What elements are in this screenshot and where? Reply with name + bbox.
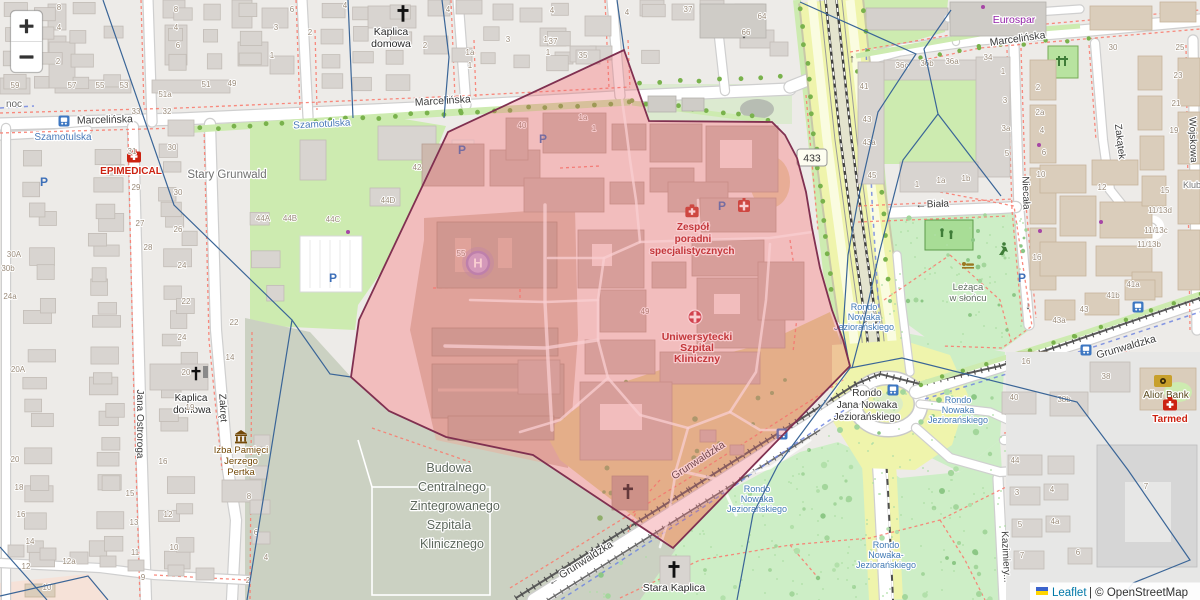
svg-text:Zakręt: Zakręt — [216, 393, 228, 422]
svg-text:28: 28 — [144, 243, 153, 252]
svg-text:1a: 1a — [466, 48, 475, 57]
svg-text:6: 6 — [1042, 148, 1047, 157]
svg-text:Leaflet: Leaflet — [1052, 587, 1087, 599]
svg-text:21: 21 — [1172, 99, 1181, 108]
svg-text:13: 13 — [130, 518, 139, 527]
svg-text:Rondo: Rondo — [873, 540, 900, 550]
svg-text:Budowa: Budowa — [426, 461, 471, 475]
svg-text:15: 15 — [1161, 186, 1170, 195]
svg-text:27: 27 — [136, 219, 145, 228]
svg-text:7: 7 — [1020, 551, 1025, 560]
svg-text:1: 1 — [270, 51, 275, 60]
svg-text:41a: 41a — [1126, 280, 1140, 289]
svg-text:Szamotulska: Szamotulska — [34, 132, 92, 143]
svg-text:30b: 30b — [1, 264, 15, 273]
svg-text:3: 3 — [274, 23, 279, 32]
svg-text:Centralnego: Centralnego — [418, 480, 486, 494]
svg-text:18: 18 — [15, 483, 24, 492]
svg-text:10: 10 — [170, 543, 179, 552]
svg-text:Niecała: Niecała — [1019, 176, 1031, 210]
svg-text:Pertka: Pertka — [227, 467, 255, 478]
svg-text:EPIMEDICAL: EPIMEDICAL — [100, 166, 162, 177]
svg-text:Szpitala: Szpitala — [427, 518, 472, 532]
svg-text:Jeziorańskiego: Jeziorańskiego — [856, 560, 916, 570]
svg-text:41b: 41b — [1106, 291, 1120, 300]
svg-text:33: 33 — [132, 107, 141, 116]
svg-text:Rondo: Rondo — [851, 302, 878, 312]
svg-text:4: 4 — [343, 1, 348, 10]
svg-text:1b: 1b — [962, 174, 971, 183]
svg-text:44C: 44C — [326, 215, 341, 224]
svg-text:44A: 44A — [256, 214, 271, 223]
svg-text:11: 11 — [131, 548, 140, 557]
svg-text:| © OpenStreetMap: | © OpenStreetMap — [1089, 587, 1188, 599]
svg-text:Wojskowa: Wojskowa — [1186, 117, 1199, 163]
svg-text:Klinicznego: Klinicznego — [420, 537, 484, 551]
svg-text:19: 19 — [1170, 126, 1179, 135]
svg-text:24: 24 — [178, 261, 187, 270]
svg-text:←: ← — [916, 199, 927, 211]
svg-text:37: 37 — [684, 5, 693, 14]
svg-text:4: 4 — [264, 553, 269, 562]
svg-text:2: 2 — [1036, 83, 1041, 92]
svg-text:↓: ↓ — [1025, 300, 1031, 312]
svg-text:16: 16 — [159, 457, 168, 466]
svg-text:12: 12 — [164, 510, 173, 519]
svg-text:55: 55 — [96, 81, 105, 90]
svg-text:59: 59 — [11, 81, 20, 90]
svg-text:4: 4 — [1040, 126, 1045, 135]
svg-text:30: 30 — [174, 188, 183, 197]
svg-text:Marcelińska: Marcelińska — [77, 113, 133, 126]
svg-text:45: 45 — [868, 171, 877, 180]
svg-text:14: 14 — [226, 353, 235, 362]
svg-text:6: 6 — [1076, 548, 1081, 557]
svg-text:4a: 4a — [1051, 517, 1060, 526]
svg-text:8: 8 — [247, 492, 252, 501]
svg-text:4: 4 — [446, 5, 451, 14]
svg-text:4: 4 — [550, 6, 555, 15]
svg-text:26: 26 — [174, 225, 183, 234]
svg-text:3a: 3a — [1002, 124, 1011, 133]
svg-text:Rondo: Rondo — [852, 388, 882, 399]
svg-text:noc: noc — [6, 99, 22, 110]
svg-text:Alior Bank: Alior Bank — [1143, 390, 1190, 401]
svg-text:43: 43 — [1080, 305, 1089, 314]
svg-text:31: 31 — [128, 147, 137, 156]
svg-text:4: 4 — [625, 8, 630, 17]
svg-text:16: 16 — [17, 510, 26, 519]
svg-text:37: 37 — [549, 37, 558, 46]
svg-text:Jeziorańskiego: Jeziorańskiego — [928, 415, 988, 425]
svg-text:36a: 36a — [945, 57, 959, 66]
svg-text:44: 44 — [1011, 456, 1020, 465]
svg-text:2: 2 — [56, 57, 61, 66]
svg-text:1a: 1a — [937, 176, 946, 185]
svg-text:↑: ↑ — [849, 53, 855, 65]
svg-text:Jeziorańskiego: Jeziorańskiego — [834, 412, 901, 423]
svg-text:6: 6 — [290, 5, 295, 14]
svg-text:11/13d: 11/13d — [1148, 206, 1172, 215]
svg-text:Kaplica: Kaplica — [374, 26, 409, 38]
svg-text:Izba Pamięci: Izba Pamięci — [214, 445, 268, 456]
svg-text:24a: 24a — [3, 292, 17, 301]
svg-text:15: 15 — [126, 489, 135, 498]
svg-text:Nowaka: Nowaka — [741, 494, 774, 504]
svg-text:Jerzego: Jerzego — [224, 456, 258, 467]
svg-text:43a: 43a — [862, 138, 876, 147]
svg-text:11/13b: 11/13b — [1137, 240, 1161, 249]
svg-text:57: 57 — [68, 81, 77, 90]
svg-text:64: 64 — [758, 12, 767, 21]
svg-text:51a: 51a — [158, 90, 172, 99]
svg-text:5: 5 — [1005, 149, 1010, 158]
svg-text:20: 20 — [182, 368, 191, 377]
svg-text:2: 2 — [423, 41, 428, 50]
svg-text:43a: 43a — [1052, 316, 1066, 325]
svg-text:4: 4 — [174, 23, 179, 32]
svg-text:1: 1 — [915, 180, 920, 189]
svg-text:w słońcu: w słońcu — [949, 293, 987, 304]
svg-text:24: 24 — [178, 333, 187, 342]
svg-text:16: 16 — [1022, 357, 1031, 366]
svg-text:Nowaka-: Nowaka- — [868, 550, 904, 560]
svg-text:Eurospar: Eurospar — [993, 14, 1036, 26]
svg-text:12: 12 — [22, 562, 31, 571]
svg-text:40: 40 — [1010, 393, 1019, 402]
svg-text:34: 34 — [984, 53, 993, 62]
svg-text:12a: 12a — [62, 557, 76, 566]
svg-text:Rondo: Rondo — [945, 395, 972, 405]
svg-text:51: 51 — [202, 80, 211, 89]
svg-text:41: 41 — [860, 82, 869, 91]
svg-text:Stary Grunwald: Stary Grunwald — [187, 169, 266, 181]
svg-text:2: 2 — [308, 28, 313, 37]
svg-text:domowa: domowa — [371, 38, 411, 50]
svg-text:4: 4 — [57, 23, 62, 32]
svg-text:Leżąca: Leżąca — [953, 282, 984, 293]
svg-text:6: 6 — [176, 41, 181, 50]
svg-text:433: 433 — [803, 153, 821, 165]
svg-text:44D: 44D — [381, 196, 396, 205]
svg-text:8: 8 — [57, 3, 62, 12]
svg-text:1: 1 — [468, 61, 473, 70]
svg-text:P: P — [329, 271, 337, 285]
svg-text:Klub: Klub — [1183, 180, 1200, 190]
svg-text:Jana Nowaka: Jana Nowaka — [837, 400, 898, 411]
svg-text:42: 42 — [413, 163, 422, 172]
svg-text:11/13c: 11/13c — [1144, 226, 1167, 235]
svg-text:53: 53 — [120, 81, 129, 90]
svg-text:4: 4 — [1050, 485, 1055, 494]
svg-text:10: 10 — [1037, 170, 1046, 179]
svg-text:30: 30 — [1109, 43, 1118, 52]
svg-text:5: 5 — [1018, 520, 1023, 529]
svg-text:Biała: Biała — [927, 199, 950, 211]
svg-text:29: 29 — [132, 183, 141, 192]
svg-text:44B: 44B — [283, 214, 297, 223]
svg-text:30: 30 — [168, 143, 177, 152]
svg-text:8: 8 — [174, 5, 179, 14]
svg-text:20A: 20A — [11, 365, 26, 374]
svg-text:P: P — [1018, 271, 1026, 285]
svg-text:19: 19 — [186, 403, 195, 412]
svg-text:23: 23 — [1174, 71, 1183, 80]
svg-text:20: 20 — [11, 455, 20, 464]
svg-text:38: 38 — [1102, 372, 1111, 381]
svg-text:22: 22 — [182, 297, 191, 306]
svg-text:9: 9 — [141, 573, 146, 582]
svg-text:3: 3 — [506, 35, 511, 44]
svg-text:14: 14 — [26, 537, 35, 546]
svg-text:25: 25 — [1176, 43, 1185, 52]
svg-text:49: 49 — [228, 79, 237, 88]
svg-text:3: 3 — [1015, 488, 1020, 497]
svg-text:43: 43 — [863, 115, 872, 124]
svg-text:3: 3 — [1003, 96, 1008, 105]
svg-text:30A: 30A — [7, 250, 22, 259]
svg-text:66: 66 — [742, 28, 751, 37]
svg-text:P: P — [40, 175, 48, 189]
svg-text:7: 7 — [1144, 482, 1149, 491]
svg-text:32: 32 — [163, 107, 172, 116]
svg-text:Nowaka: Nowaka — [942, 405, 975, 415]
svg-text:2a: 2a — [1036, 108, 1045, 117]
svg-text:1: 1 — [546, 48, 551, 57]
svg-text:12: 12 — [1098, 183, 1107, 192]
svg-text:22: 22 — [230, 318, 239, 327]
svg-text:1: 1 — [1001, 67, 1006, 76]
svg-text:16: 16 — [1033, 253, 1042, 262]
svg-text:35: 35 — [579, 51, 588, 60]
svg-text:Zintegrowanego: Zintegrowanego — [410, 499, 500, 513]
svg-text:Tarmed: Tarmed — [1152, 414, 1187, 425]
svg-text:Stara Kaplica: Stara Kaplica — [643, 582, 706, 594]
svg-text:Jana Ostroroga: Jana Ostroroga — [134, 390, 145, 459]
